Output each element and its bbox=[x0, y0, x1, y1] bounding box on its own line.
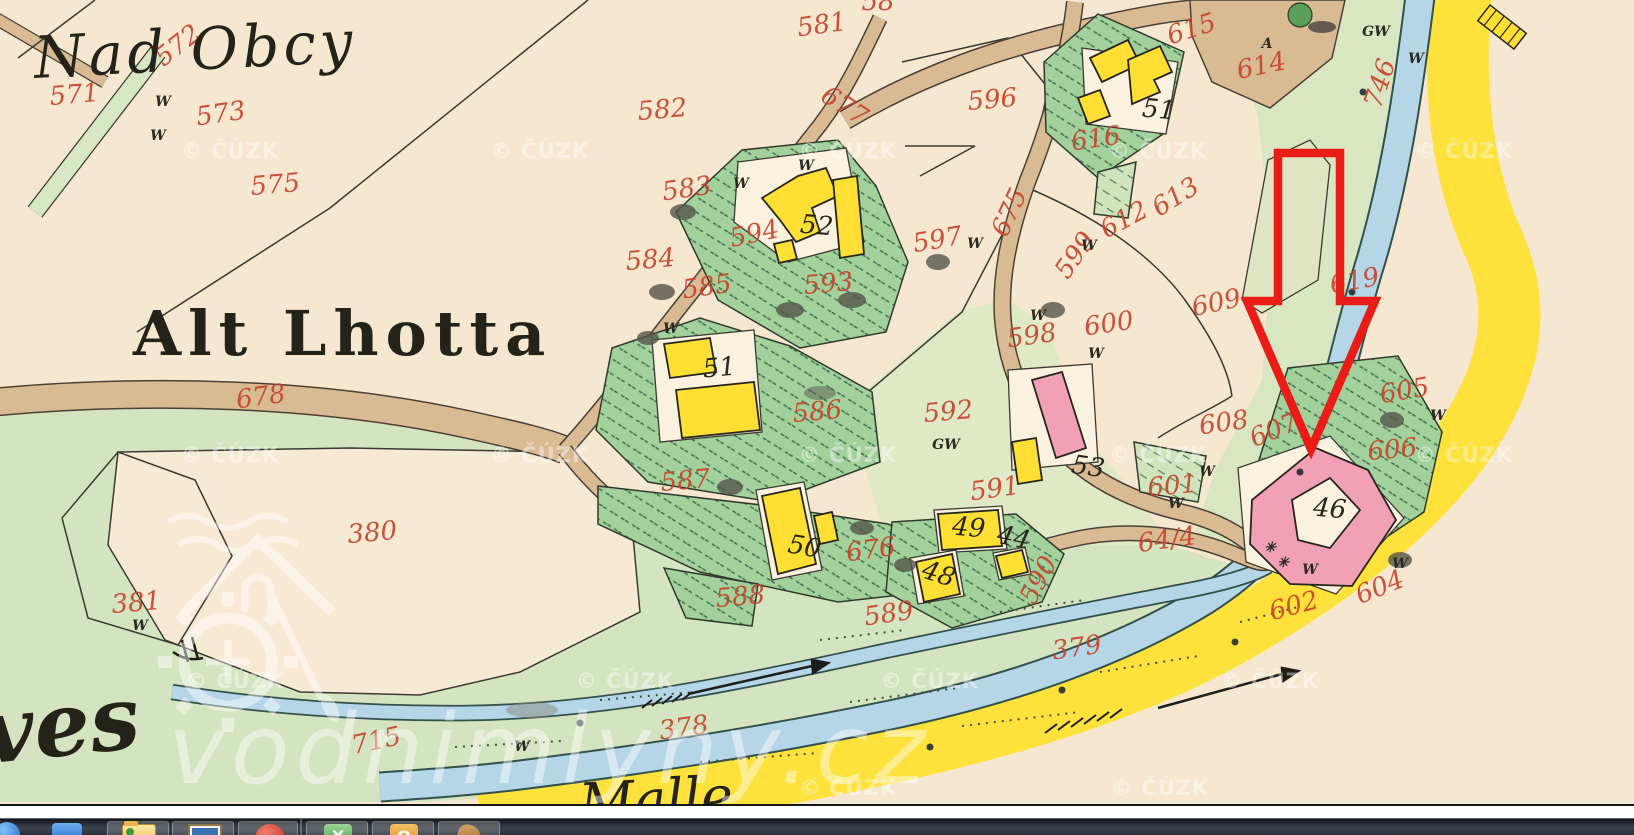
letter-mark: ✳ bbox=[1264, 540, 1277, 556]
vodnimlyny-watermark-text: vodnimlyny.cz bbox=[168, 694, 931, 804]
copyright-watermark: © ČÚZK bbox=[181, 138, 279, 163]
taskbar-button-folder[interactable] bbox=[107, 821, 169, 835]
taskbar-button-document[interactable] bbox=[438, 821, 500, 835]
copyright-watermark: © ČÚZK bbox=[1109, 138, 1207, 163]
copyright-watermark: © ČÚZK bbox=[491, 138, 589, 163]
letter-mark: W bbox=[1302, 562, 1319, 578]
building-number: 51 bbox=[1141, 94, 1177, 127]
parcel-number: 593 bbox=[802, 267, 854, 301]
copyright-watermark: © ČÚZK bbox=[1415, 442, 1513, 467]
taskbar-button-viewer[interactable] bbox=[172, 821, 234, 835]
map-image[interactable]: 5715725735755825815867759661561461661261… bbox=[0, 0, 1634, 806]
copyright-watermark: © ČÚZK bbox=[799, 138, 897, 163]
copyright-watermark: © ČÚZK bbox=[491, 442, 589, 467]
letter-mark: W bbox=[132, 618, 149, 634]
document-icon[interactable] bbox=[455, 823, 484, 835]
building-number: 52 bbox=[799, 210, 835, 243]
building-number: 50 bbox=[785, 529, 823, 564]
copyright-watermark: © ČÚZK bbox=[1415, 138, 1513, 163]
copyright-watermark: © ČÚZK bbox=[1221, 668, 1319, 693]
parcel-number: 58 bbox=[861, 0, 894, 17]
powerpoint-icon[interactable]: O bbox=[390, 824, 418, 835]
taskbar-button-powerpoint[interactable]: O bbox=[372, 821, 434, 835]
building-number: 51 bbox=[702, 352, 738, 385]
cadastral-map: 5715725735755825815867759661561461661261… bbox=[0, 0, 1634, 804]
letter-mark: W bbox=[1081, 238, 1098, 254]
letter-mark: W bbox=[155, 94, 172, 110]
copyright-watermark: © ČÚZK bbox=[576, 668, 674, 693]
parcel-number: 586 bbox=[791, 395, 843, 429]
letter-mark: W bbox=[1168, 496, 1185, 512]
parcel-number: 582 bbox=[636, 93, 688, 127]
folder-icon[interactable] bbox=[122, 824, 156, 835]
letter-mark: W bbox=[1408, 51, 1425, 67]
parcel-number: 381 bbox=[110, 586, 162, 620]
parcel-number: 592 bbox=[922, 395, 974, 429]
letter-mark: W bbox=[1030, 308, 1047, 324]
letter-mark: W bbox=[1430, 408, 1447, 424]
parcel-number: 380 bbox=[346, 516, 398, 550]
taskbar-button-record[interactable] bbox=[238, 821, 298, 835]
letter-mark: W bbox=[150, 128, 167, 144]
parcel-number: 588 bbox=[714, 580, 766, 614]
letter-mark: A bbox=[1260, 36, 1273, 52]
letter-mark: W bbox=[663, 321, 680, 337]
desktop-gap bbox=[0, 806, 1634, 818]
red-record-icon[interactable] bbox=[255, 824, 285, 835]
letter-mark: W bbox=[967, 236, 984, 252]
copyright-watermark: © ČÚZK bbox=[881, 668, 979, 693]
image-viewer-icon[interactable] bbox=[188, 824, 222, 835]
parcel-number: 587 bbox=[659, 464, 712, 498]
parcel-number: 606 bbox=[1366, 433, 1418, 467]
place-label-alt-lhotta: Alt Lhotta bbox=[132, 297, 552, 370]
letter-mark: W bbox=[1392, 556, 1409, 572]
excel-icon[interactable]: X bbox=[324, 824, 352, 835]
place-label-ves: ves bbox=[0, 665, 144, 785]
taskbar[interactable]: X O bbox=[0, 818, 1634, 835]
letter-mark: GW bbox=[1362, 24, 1391, 40]
building-number: 53 bbox=[1070, 450, 1107, 484]
letter-mark: W bbox=[733, 176, 750, 192]
internet-explorer-icon[interactable] bbox=[0, 822, 20, 835]
parcel-number: 575 bbox=[249, 168, 301, 202]
parcel-number: 596 bbox=[966, 83, 1018, 117]
letter-mark: ✳ bbox=[1277, 555, 1290, 571]
building-number: 46 bbox=[1311, 493, 1348, 526]
blue-app-icon[interactable] bbox=[52, 823, 82, 835]
letter-mark: GW bbox=[932, 437, 961, 453]
building-number: 49 bbox=[950, 512, 987, 545]
taskbar-divider bbox=[300, 819, 302, 835]
copyright-watermark: © ČÚZK bbox=[1111, 775, 1209, 800]
copyright-watermark: © ČÚZK bbox=[799, 442, 897, 467]
letter-mark: W bbox=[1088, 346, 1105, 362]
desktop: 5715725735755825815867759661561461661261… bbox=[0, 0, 1634, 835]
taskbar-button-excel[interactable]: X bbox=[306, 821, 368, 835]
tree-icon bbox=[1288, 3, 1312, 27]
parcel-number: 584 bbox=[624, 243, 676, 277]
copyright-watermark: © ČÚZK bbox=[181, 442, 279, 467]
copyright-watermark: © ČÚZK bbox=[1109, 442, 1207, 467]
